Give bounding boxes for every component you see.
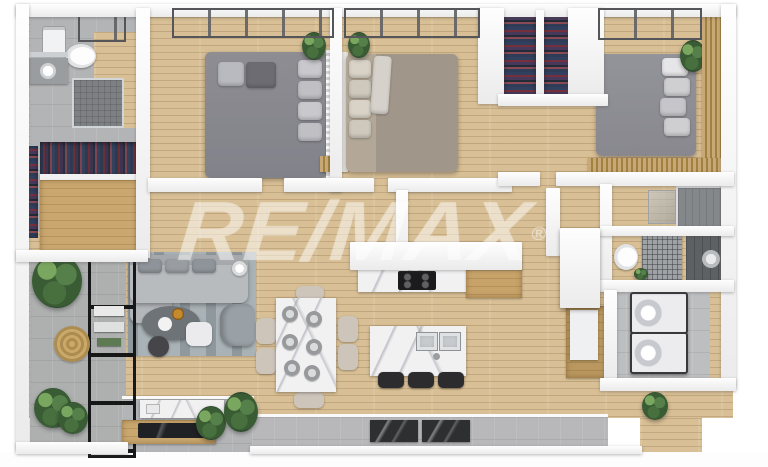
- serving-plate: [158, 317, 172, 331]
- balcony-shelf-item: [94, 306, 124, 316]
- balcony-plant-floor: [58, 402, 88, 434]
- bedroom2-pillow: [349, 60, 371, 78]
- bedroom3-pillow: [664, 118, 690, 136]
- wall-kitchen-back: [350, 242, 522, 270]
- bedroom1-window: [172, 8, 334, 38]
- dinner-plate: [282, 306, 298, 322]
- toilet-2: [614, 244, 638, 270]
- terrace-wood-threshold: [640, 418, 702, 452]
- wall-right-outer: [721, 4, 736, 388]
- bathroom1-sink: [40, 63, 56, 79]
- dining-chair-left-2: [256, 348, 276, 374]
- dining-chair-right-1: [338, 316, 358, 342]
- bedroom3-slat-accent-wall: [702, 12, 722, 160]
- bar-stool: [378, 372, 404, 388]
- dinner-plate: [304, 365, 320, 381]
- island-faucet: [433, 353, 440, 360]
- side-table: [148, 336, 169, 357]
- toilet-1: [66, 44, 96, 68]
- bedroom3-pillow: [660, 98, 686, 116]
- wall-outlet: [146, 404, 160, 414]
- laundry-tall-cabinet: [560, 228, 600, 308]
- bar-stool: [408, 372, 434, 388]
- potted-plant: [196, 406, 226, 440]
- potted-plant: [224, 392, 258, 432]
- wall-kitchen-laundry-divider: [546, 188, 560, 256]
- bedroom2-pillow: [349, 120, 371, 138]
- gas-stove: [398, 271, 436, 290]
- wardrobe-cabinet: [40, 180, 138, 254]
- wall-laundry-bottom: [600, 378, 736, 391]
- potted-plant: [642, 392, 668, 420]
- potted-plant: [634, 268, 648, 280]
- wall-closet-divider: [536, 10, 544, 98]
- dining-chair-left-1: [256, 318, 276, 344]
- wall-shower-wc-divider: [600, 226, 734, 236]
- closet-clothes-rack-top: [40, 142, 138, 174]
- floor-plan-render: RE/MAX®: [0, 0, 768, 467]
- shower-2-glass-door: [648, 190, 676, 224]
- wall-bedroom2-closet: [478, 8, 504, 104]
- bar-stool: [438, 372, 464, 388]
- wall-bathroom1-right: [136, 8, 150, 258]
- dinner-plate: [306, 339, 322, 355]
- shower-1: [72, 78, 124, 128]
- bathroom1-mirror: [28, 52, 68, 57]
- sofa-cushion: [165, 259, 189, 273]
- sofa-cushion: [192, 259, 216, 273]
- wall-left-outer: [16, 4, 29, 450]
- pouf: [186, 322, 212, 346]
- bedroom1-folded-blanket-dark: [246, 62, 276, 88]
- wall-hall-segment-1: [148, 178, 262, 192]
- bedroom1-pillow: [298, 123, 322, 141]
- dining-chair-right-2: [338, 344, 358, 370]
- dining-chair-bottom: [294, 392, 324, 408]
- balcony-shelf-book: [97, 338, 121, 346]
- wall-bottom-left-outer: [16, 442, 128, 454]
- bedroom2-pillow: [349, 80, 371, 98]
- wall-bathroom2-top: [556, 172, 734, 186]
- bedroom1-pillow: [298, 102, 322, 120]
- wall-wc-bottom: [600, 280, 734, 292]
- washer: [630, 292, 688, 334]
- round-woven-rug: [54, 326, 90, 362]
- dinner-plate: [284, 360, 300, 376]
- dinner-plate: [306, 311, 322, 327]
- bathroom1-skylight-window: [78, 14, 126, 42]
- bedroom1-folded-blanket-light: [218, 62, 244, 86]
- wardrobe-closet-1: [504, 12, 536, 96]
- wall-laundry-left: [604, 290, 617, 380]
- bedroom1-pillow: [298, 60, 322, 78]
- table-lamp: [232, 261, 247, 276]
- laundry-cabinet-front: [570, 310, 598, 360]
- wall-hall-right-segment: [498, 172, 540, 186]
- island-sink-left: [416, 332, 438, 351]
- bedroom2-pillow: [349, 100, 371, 118]
- shower-3-round-mirror: [702, 250, 720, 268]
- balcony-shelf-item: [94, 322, 124, 332]
- island-sink-right: [439, 332, 461, 351]
- bedroom1-pillow: [298, 81, 322, 99]
- terrace-mat: [370, 420, 418, 442]
- balcony-plant-large: [32, 254, 82, 308]
- armchair: [220, 304, 254, 346]
- terrace-outer-edge: [250, 446, 642, 454]
- dryer: [630, 332, 688, 374]
- wall-hall-segment-2: [284, 178, 374, 192]
- bedroom3-window: [598, 8, 702, 40]
- bedroom3-pillow: [664, 78, 690, 96]
- fruit-bowl: [172, 308, 184, 320]
- wall-closet-bottom: [16, 250, 148, 262]
- dinner-plate: [282, 334, 298, 350]
- wall-below-closets: [498, 94, 608, 106]
- terrace-mat: [422, 420, 470, 442]
- bedroom2-window: [344, 8, 480, 38]
- wc-mosaic-vanity: [642, 234, 682, 280]
